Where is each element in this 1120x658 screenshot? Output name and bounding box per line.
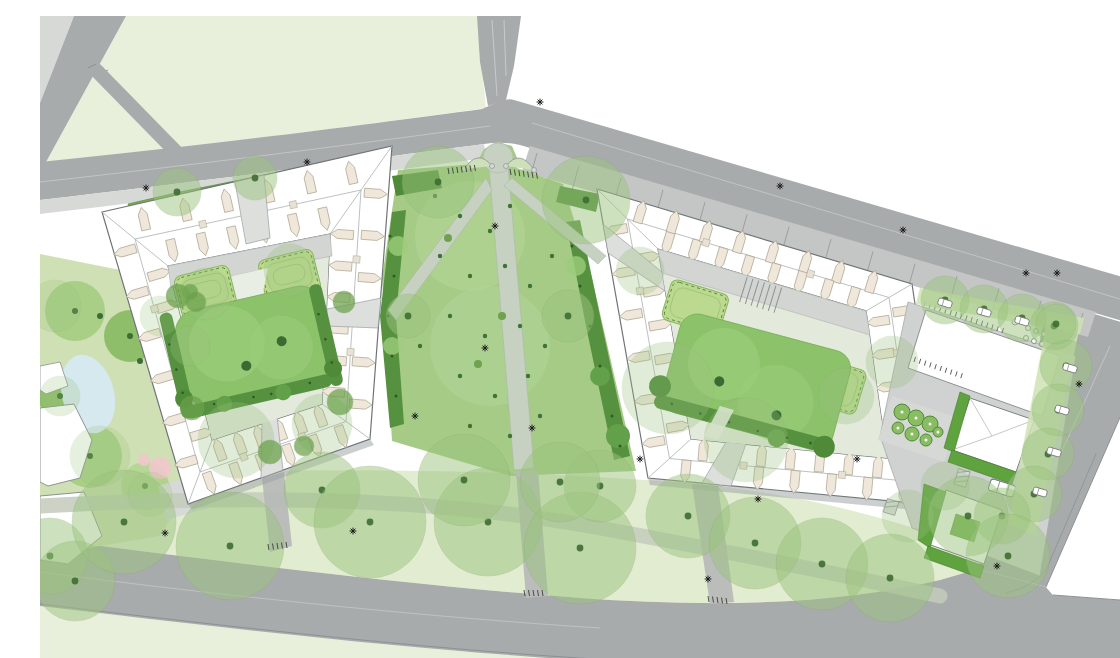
bed-blob [566, 256, 586, 276]
roof-chimney [199, 220, 207, 228]
tree-canopy [333, 291, 355, 313]
site-plan-figure: Courtyard housing landscape site plan [40, 16, 1120, 658]
lamp-post-symbol [705, 576, 712, 583]
ring-center [911, 433, 914, 436]
planting-dot [395, 395, 398, 398]
planting-dot [127, 333, 133, 339]
tree-trunk [367, 519, 374, 526]
lamp-post-symbol [143, 185, 150, 192]
planting-dot [137, 358, 143, 364]
roof-chimney [289, 201, 297, 209]
ring-center [897, 427, 900, 430]
planting-dot [611, 415, 614, 418]
tree-trunk [461, 477, 468, 484]
tree-canopy [180, 396, 204, 420]
lamp-post-symbol [755, 496, 762, 503]
tree-trunk [557, 479, 564, 486]
tree-trunk [565, 313, 572, 320]
tree-canopy [198, 402, 274, 478]
planting-dot [458, 374, 462, 378]
planting-dot [391, 355, 394, 358]
tree-trunk [1053, 321, 1060, 328]
flowering-shrub [138, 454, 150, 466]
planting-dot [543, 344, 547, 348]
lamp-post-symbol [529, 425, 536, 432]
tree-trunk [965, 513, 972, 520]
planting-dot [444, 234, 452, 242]
roof-chimney [353, 256, 361, 264]
tree-canopy [616, 247, 664, 295]
tree-trunk [72, 578, 79, 585]
planting-dot [97, 313, 103, 319]
tree-trunk [887, 575, 894, 582]
lamp-post-symbol [854, 456, 861, 463]
planting-dot [418, 344, 422, 348]
lamp-post-symbol [350, 528, 357, 535]
lamp-post-symbol [412, 413, 419, 420]
tree-canopy [128, 472, 172, 516]
lamp-post-symbol [304, 159, 311, 166]
tree-canopy [264, 244, 316, 296]
lamp-post-symbol [1076, 381, 1083, 388]
ring-center [901, 411, 904, 414]
tree-canopy [327, 389, 353, 415]
lamp-post-symbol [537, 99, 544, 106]
entrance-plaza [483, 143, 513, 173]
ring-center [937, 431, 940, 434]
planting-dot [599, 365, 602, 368]
lawn-patch [430, 286, 550, 406]
tree-trunk [435, 179, 442, 186]
tree-trunk [685, 513, 692, 520]
tree-canopy [866, 336, 918, 388]
tree-canopy [622, 342, 714, 434]
lamp-post-symbol [482, 345, 489, 352]
tree-canopy [704, 398, 788, 482]
ring-center [915, 417, 918, 420]
roof-chimney [347, 348, 355, 356]
tree-trunk [583, 197, 590, 204]
planting-dot [619, 445, 622, 448]
planting-dot [458, 214, 462, 218]
tree-trunk [121, 519, 128, 526]
lamp-post-symbol [637, 456, 644, 463]
ring-center [925, 439, 928, 442]
ring [532, 168, 537, 173]
planting-dot [550, 254, 554, 258]
tree-canopy [818, 368, 874, 424]
planting-dot [389, 235, 392, 238]
tree-canopy [170, 326, 210, 366]
planting-dot [438, 254, 442, 258]
tree-canopy [258, 440, 282, 464]
planting-dot [508, 434, 512, 438]
planting-dot [508, 204, 512, 208]
tree-canopy [182, 284, 198, 300]
tree-canopy [40, 376, 80, 416]
lamp-post-symbol [162, 530, 169, 537]
planting-dot [468, 424, 472, 428]
planting-dot [393, 275, 396, 278]
planting-dot [528, 284, 532, 288]
planting-dot [474, 360, 482, 368]
lamp-post-symbol [994, 563, 1001, 570]
bed-blob [590, 366, 610, 386]
planting-dot [518, 324, 522, 328]
tree-trunk [819, 561, 826, 568]
planting-dot [468, 274, 472, 278]
planting-dot [488, 229, 492, 233]
planting-dot [498, 312, 506, 320]
planting-dot [448, 314, 452, 318]
ring-center [929, 423, 932, 426]
planting-dot [503, 264, 507, 268]
planting-dot [571, 245, 574, 248]
lamp-post-symbol [900, 227, 907, 234]
site-plan-canvas [40, 16, 1120, 658]
planting-dot [483, 334, 487, 338]
tree-canopy [70, 426, 130, 486]
tree-trunk [174, 189, 181, 196]
lamp-post-symbol [1054, 270, 1061, 277]
tree-trunk [227, 543, 234, 550]
tree-trunk [752, 540, 759, 547]
tree-canopy [294, 436, 314, 456]
tree-trunk [252, 175, 259, 182]
lamp-post-symbol [492, 223, 499, 230]
bed-blob [606, 424, 630, 448]
bed-blob [383, 337, 401, 355]
ring [490, 164, 495, 169]
planting-dot [538, 414, 542, 418]
tree-canopy [921, 462, 969, 510]
planting-dot [493, 394, 497, 398]
tree-trunk [577, 545, 584, 552]
planting-dot [526, 374, 530, 378]
lamp-post-symbol [777, 183, 784, 190]
ring [504, 164, 509, 169]
tree-trunk [405, 313, 412, 320]
roof-chimney [838, 471, 846, 479]
tree-trunk [1005, 553, 1012, 560]
planting-dot [579, 285, 582, 288]
bed-blob [388, 236, 408, 256]
lamp-post-symbol [1023, 270, 1030, 277]
